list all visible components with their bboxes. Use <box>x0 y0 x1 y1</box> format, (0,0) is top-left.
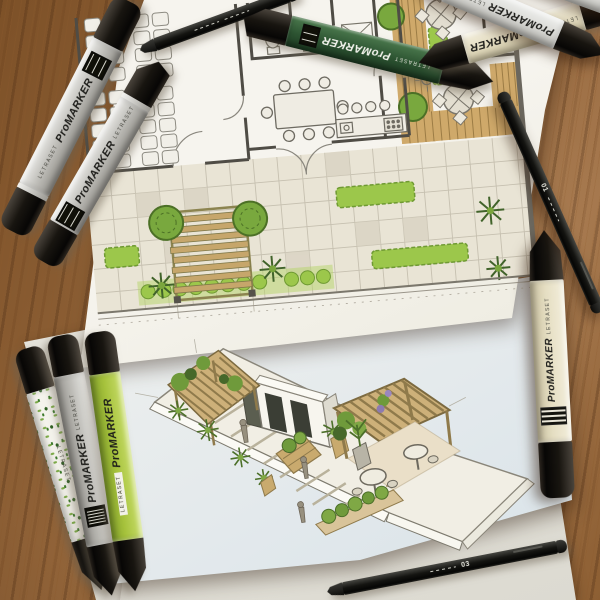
desk-photo: LETRASET ProMARKER ProMARKER LETRASET Pr… <box>0 0 600 600</box>
marker-cap <box>83 330 120 376</box>
pen-size-text: 01 <box>539 182 549 193</box>
kitchen-counter <box>334 99 407 138</box>
letraset-text: LETRASET <box>115 471 129 515</box>
pen-fine-print <box>430 566 456 572</box>
promarker-text: ProMARKER <box>74 432 99 503</box>
pen-size-text: 03 <box>461 561 471 570</box>
letraset-text: LETRASET <box>450 0 486 7</box>
promarker-text: ProMARKER <box>321 33 392 62</box>
promarker-text: ProMARKER <box>102 398 124 469</box>
pen-fine-print <box>194 21 219 31</box>
label-info-patch <box>84 504 109 528</box>
letraset-text: LETRASET <box>70 393 83 431</box>
letraset-text: LETRASET <box>112 105 136 140</box>
label-info-patch <box>298 23 321 48</box>
label-barcode <box>540 406 567 425</box>
label-info-patch <box>82 51 112 81</box>
promarker-text: ProMARKER <box>544 338 558 403</box>
marker-cap <box>538 441 575 499</box>
letraset-text: LETRASET <box>37 144 59 180</box>
letraset-text: LETRASET <box>545 297 553 334</box>
